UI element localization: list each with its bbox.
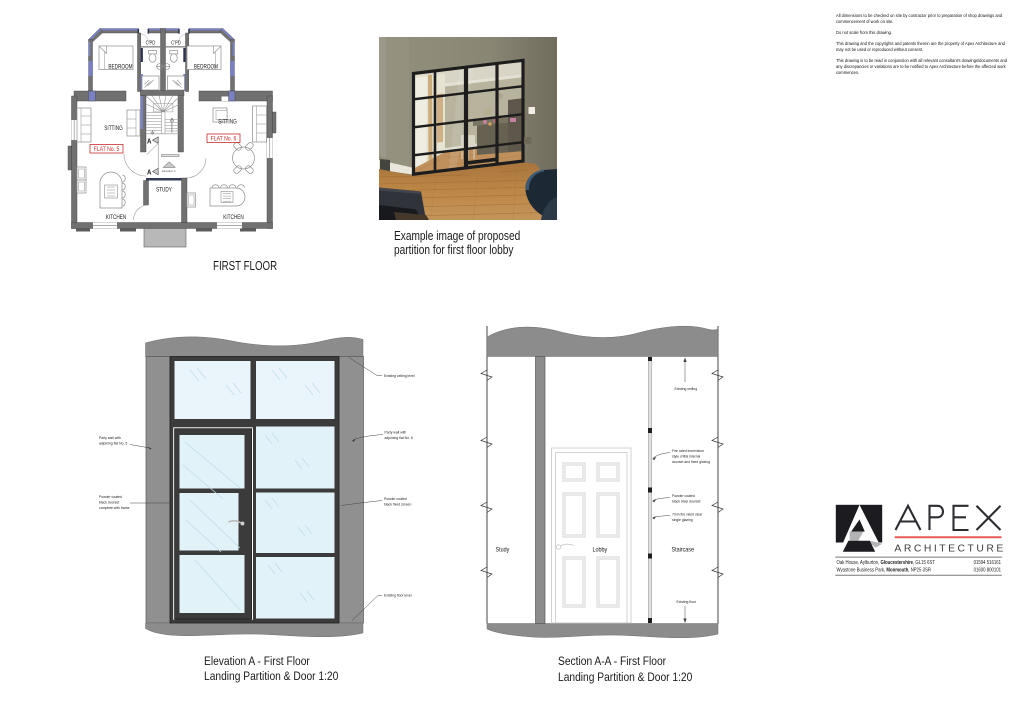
svg-text:Existing floor level: Existing floor level — [384, 593, 412, 597]
svg-text:C'PD: C'PD — [171, 40, 181, 47]
svg-text:A: A — [147, 169, 152, 176]
svg-text:BEDROOM: BEDROOM — [194, 64, 219, 71]
svg-text:Existing floor: Existing floor — [677, 600, 697, 604]
svg-text:Wyastone Business Park, Monmou: Wyastone Business Park, Monmouth, NP25 3… — [837, 567, 932, 574]
svg-text:Fire rated innervision: Fire rated innervision — [672, 449, 704, 453]
svg-text:KITCHEN: KITCHEN — [223, 215, 244, 222]
svg-text:black doorset: black doorset — [99, 500, 119, 504]
svg-text:01594 516161: 01594 516161 — [974, 560, 1002, 567]
svg-text:FLAT No. 5: FLAT No. 5 — [94, 147, 120, 154]
svg-text:Staircase: Staircase — [672, 547, 695, 554]
svg-text:Powder coated: Powder coated — [384, 497, 407, 501]
svg-text:KITCHEN: KITCHEN — [106, 215, 127, 222]
svg-text:single glazing: single glazing — [672, 518, 693, 522]
svg-text:STUDY: STUDY — [156, 187, 172, 194]
svg-text:Powder coated: Powder coated — [99, 495, 122, 499]
svg-text:C'PD: C'PD — [146, 40, 156, 47]
svg-text:Study: Study — [496, 547, 510, 554]
svg-text:Existing ceiling level: Existing ceiling level — [384, 374, 415, 378]
svg-text:complete with frame: complete with frame — [99, 506, 130, 510]
svg-text:Party wall with: Party wall with — [99, 436, 121, 440]
svg-text:SITTING: SITTING — [104, 126, 122, 133]
svg-text:7mm fire rated clear: 7mm fire rated clear — [672, 512, 703, 516]
svg-text:style crittal internal: style crittal internal — [672, 454, 700, 458]
svg-text:adjoining flat No. 5: adjoining flat No. 5 — [99, 441, 127, 445]
svg-text:adjoining flat No. 6: adjoining flat No. 6 — [385, 436, 413, 440]
svg-text:BEDROOM: BEDROOM — [108, 64, 133, 71]
svg-text:Elevation A: Elevation A — [162, 169, 176, 173]
svg-text:black steel doorset: black steel doorset — [672, 499, 700, 503]
svg-text:01600 800101: 01600 800101 — [974, 567, 1002, 574]
svg-text:doorset and fixed glazing: doorset and fixed glazing — [672, 460, 710, 464]
svg-text:Party wall with: Party wall with — [385, 430, 407, 434]
svg-text:Lobby: Lobby — [593, 547, 608, 554]
svg-text:A: A — [147, 138, 152, 145]
svg-text:Existing ceiling: Existing ceiling — [675, 387, 698, 391]
svg-text:FLAT No. 6: FLAT No. 6 — [211, 136, 237, 143]
svg-text:black fixed screen: black fixed screen — [384, 502, 411, 506]
svg-text:SITTING: SITTING — [218, 119, 236, 126]
svg-text:ARCHITECTURE: ARCHITECTURE — [894, 543, 1005, 554]
svg-text:Powder coated: Powder coated — [672, 494, 695, 498]
svg-text:Oak House, Aylburton, Gloucest: Oak House, Aylburton, Gloucestershire, G… — [837, 560, 935, 567]
